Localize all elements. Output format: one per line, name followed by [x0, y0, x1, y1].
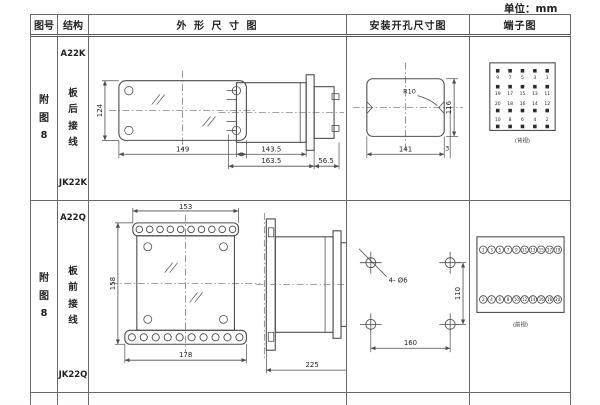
svg-text:3: 3: [533, 75, 536, 81]
dim-56-5: 56.5: [318, 157, 334, 165]
svg-text:15: 15: [539, 247, 545, 252]
svg-text:2: 2: [482, 297, 485, 302]
svg-text:16: 16: [520, 101, 526, 107]
dim-153: 153: [179, 203, 192, 211]
row2-terminal-caption: (前视): [513, 320, 528, 328]
row1-fig-no: 附 图 8: [31, 37, 57, 200]
row1-terminal-cell: 9753119171513112018161412108642 (背视): [470, 37, 571, 201]
row2-fig-no-cell: 附 图 8: [31, 201, 58, 393]
sliver-cell-5: [470, 393, 571, 405]
svg-text:1: 1: [482, 247, 485, 252]
svg-text:7: 7: [509, 75, 512, 81]
svg-text:20: 20: [555, 297, 561, 302]
row1-wiring: 板 后 接 线: [68, 86, 78, 151]
row1-mounting-drawing: R10 141 116 3: [347, 37, 469, 200]
row2-model-bottom: JK22Q: [59, 370, 88, 380]
svg-text:8: 8: [509, 117, 512, 123]
svg-text:2: 2: [546, 117, 549, 123]
svg-text:9: 9: [496, 75, 499, 81]
svg-text:11: 11: [544, 91, 550, 97]
row1-outline-drawing: 124 149 143.5 163.5: [89, 37, 346, 200]
dim-143-5: 143.5: [261, 145, 281, 153]
header-terminal: 端子图: [470, 15, 571, 37]
row2-terminal-cell: 1357911131517192468101214161820 (前视): [470, 201, 571, 393]
row2-mounting-drawing: 4- Ø6 160 110: [347, 201, 469, 392]
row2-structure-cell: A22Q 板 前 接 线 JK22Q: [58, 201, 89, 393]
svg-text:14: 14: [532, 101, 538, 107]
svg-text:10: 10: [495, 117, 501, 123]
terminal-pin-grid-front: 1357911131517192468101214161820: [480, 246, 562, 303]
svg-text:10: 10: [514, 297, 520, 302]
sliver-cell-4: [347, 393, 470, 405]
row1-terminal-caption: (背视): [515, 136, 530, 144]
svg-text:19: 19: [495, 91, 501, 97]
svg-text:5: 5: [521, 75, 524, 81]
svg-text:13: 13: [530, 247, 536, 252]
row1-mounting-cell: R10 141 116 3: [347, 37, 470, 201]
svg-text:17: 17: [547, 247, 553, 252]
sliver-cell-3: [89, 393, 347, 405]
svg-text:6: 6: [499, 297, 502, 302]
header-mounting: 安装开孔尺寸图: [347, 15, 470, 37]
svg-text:3: 3: [490, 247, 493, 252]
svg-text:1: 1: [546, 75, 549, 81]
dim-124: 124: [96, 103, 104, 117]
row2-outline-cell: 153 158 178 225: [89, 201, 347, 393]
sliver-cell-2: [58, 393, 89, 405]
terminal-pin-grid-rear: 9753119171513112018161412108642: [495, 69, 550, 128]
header-outline: 外 形 尺 寸 图: [89, 15, 347, 37]
dim-178: 178: [179, 351, 192, 359]
svg-text:8: 8: [507, 297, 510, 302]
svg-text:11: 11: [522, 247, 528, 252]
svg-text:18: 18: [547, 297, 553, 302]
svg-text:18: 18: [507, 101, 513, 107]
dim-163-5: 163.5: [261, 157, 281, 165]
svg-text:16: 16: [539, 297, 545, 302]
row1-outline-cell: 124 149 143.5 163.5: [89, 37, 347, 201]
svg-text:9: 9: [515, 247, 518, 252]
svg-text:13: 13: [532, 91, 538, 97]
dim-160: 160: [404, 339, 417, 347]
row2-mounting-cell: 4- Ø6 160 110: [347, 201, 470, 393]
dim-225: 225: [305, 361, 318, 369]
hole-label: 4- Ø6: [389, 277, 408, 285]
row1-structure-cell: A22K 板 后 接 线 JK22K: [58, 37, 89, 201]
header-structure: 结构: [58, 15, 89, 37]
svg-text:19: 19: [555, 247, 561, 252]
mounting-holes: [360, 252, 461, 336]
svg-text:15: 15: [520, 91, 526, 97]
dim-3: 3: [445, 144, 449, 152]
dim-116: 116: [445, 101, 453, 114]
svg-text:5: 5: [499, 247, 502, 252]
dim-141: 141: [399, 145, 412, 153]
sliver-cell-1: [31, 393, 58, 405]
svg-text:12: 12: [544, 101, 550, 107]
svg-text:20: 20: [495, 101, 501, 107]
svg-text:14: 14: [530, 297, 536, 302]
svg-text:17: 17: [507, 91, 513, 97]
row2-terminal-diagram: 1357911131517192468101214161820 (前视): [470, 201, 570, 392]
svg-text:6: 6: [521, 117, 524, 123]
row2-fig-no: 附 图 8: [31, 201, 57, 392]
row2-outline-drawing: 153 158 178 225: [89, 201, 346, 392]
row2-wiring: 板 前 接 线: [68, 264, 78, 329]
row1-model-bottom: JK22K: [59, 178, 87, 188]
svg-text:4: 4: [490, 297, 493, 302]
row1-fig-no-cell: 附 图 8: [31, 37, 58, 201]
svg-text:7: 7: [507, 247, 510, 252]
spec-sheet-page: 单位：mm 图号 结构 外 形 尺 寸 图 安装开孔尺寸图 端子图 附 图 8 …: [0, 0, 600, 400]
svg-text:4: 4: [533, 117, 536, 123]
row1-terminal-diagram: 9753119171513112018161412108642 (背视): [470, 37, 570, 200]
header-fig-no: 图号: [31, 15, 58, 37]
row2-model-top: A22Q: [60, 213, 86, 223]
svg-text:12: 12: [522, 297, 528, 302]
spec-table: 图号 结构 外 形 尺 寸 图 安装开孔尺寸图 端子图 附 图 8 A22K 板…: [30, 14, 571, 405]
dim-149: 149: [176, 145, 189, 153]
row1-model-top: A22K: [61, 49, 86, 59]
dim-158: 158: [109, 277, 117, 290]
dim-110: 110: [454, 287, 462, 300]
dim-r10: R10: [403, 88, 416, 96]
